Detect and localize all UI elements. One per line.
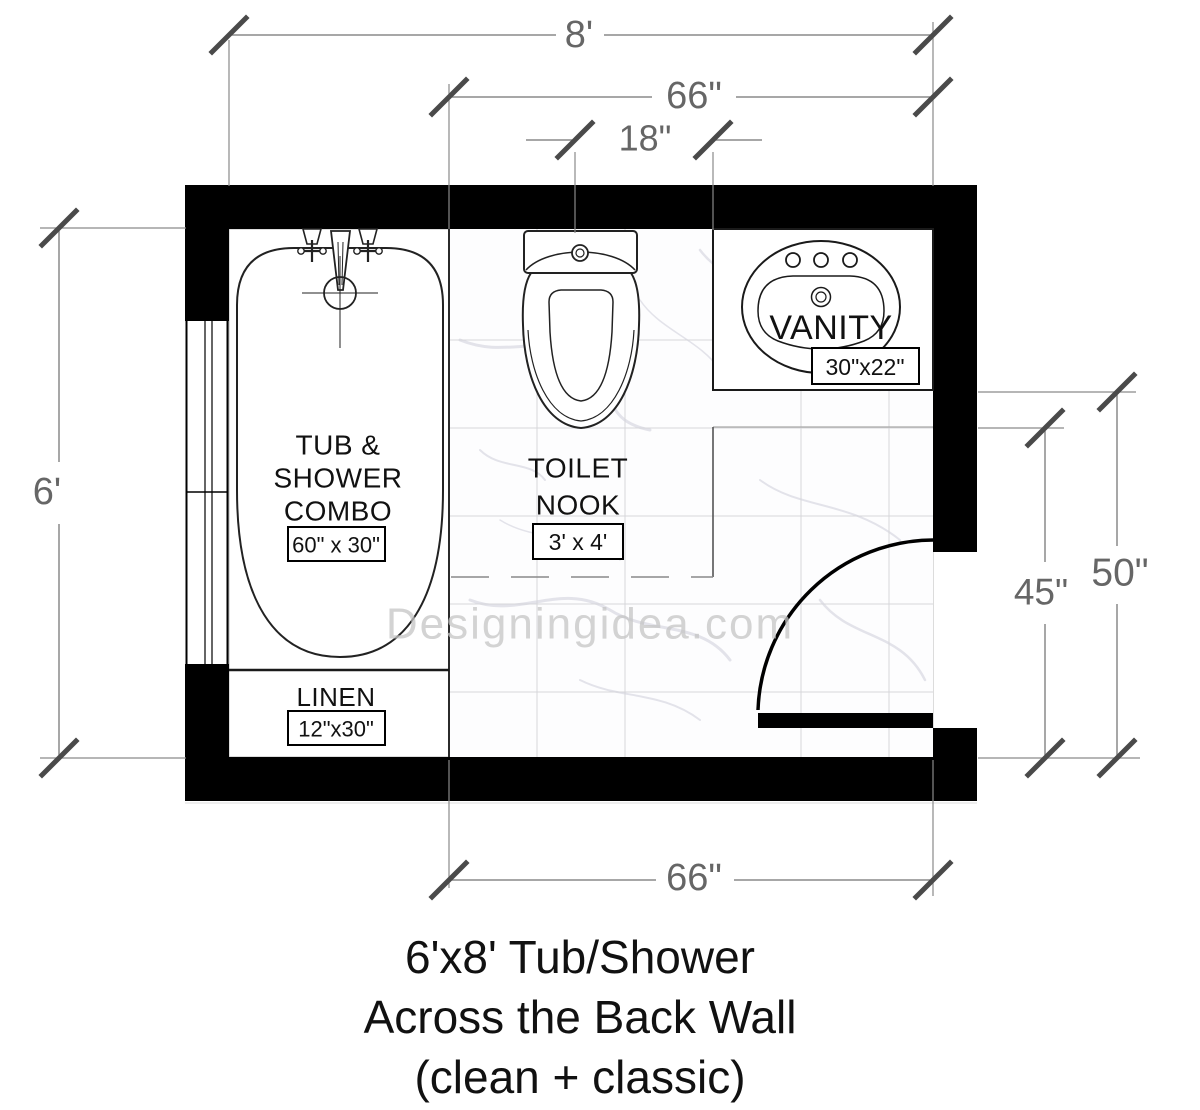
title-line2: Across the Back Wall: [364, 991, 797, 1043]
watermark-text: Designingidea.com: [386, 600, 794, 649]
wall-left-upper: [185, 229, 229, 321]
faucet-hole-center: [814, 253, 828, 267]
vanity-label: VANITY: [769, 309, 892, 347]
toilet-flush-button: [572, 245, 588, 261]
tub-size-text: 60" x 30": [292, 533, 380, 558]
toilet: [523, 231, 639, 428]
dim-toilet-centerline: 18": [619, 118, 672, 159]
dim-inner-width-top: 66": [666, 75, 722, 117]
dim-inner-width-bottom: 66": [666, 857, 722, 899]
vanity-size-text: 30"x22": [826, 354, 905, 380]
tub-label-line2: SHOWER: [274, 463, 403, 494]
nook-size-text: 3' x 4': [549, 529, 608, 555]
sink-drain: [812, 288, 831, 307]
dim-overall-width: 8': [565, 14, 593, 56]
plan-title: 6'x8' Tub/Shower Across the Back Wall (c…: [364, 931, 797, 1103]
dim-right-clearance-outer: 50": [1091, 552, 1148, 595]
title-line1: 6'x8' Tub/Shower: [405, 931, 755, 983]
linen-label: LINEN: [296, 682, 375, 712]
wall-bottom: [185, 757, 977, 801]
faucet-hole-right: [843, 253, 857, 267]
nook-label-line2: NOOK: [536, 490, 620, 521]
dim-right-clearance-inner: 45": [1014, 572, 1068, 613]
faucet-hole-left: [786, 253, 800, 267]
door-leaf: [758, 713, 933, 728]
dim-overall-height: 6': [33, 471, 61, 513]
nook-label-line1: TOILET: [528, 453, 629, 484]
wall-top: [185, 185, 977, 229]
linen-size-text: 12"x30": [298, 717, 374, 742]
floor-plan: TUB & SHOWER COMBO 60" x 30" LINEN 12"x3…: [0, 0, 1200, 1110]
wall-right-upper: [933, 229, 977, 552]
tub-label-line1: TUB &: [296, 430, 381, 461]
title-line3: (clean + classic): [414, 1051, 745, 1103]
tub-label-line3: COMBO: [284, 496, 392, 527]
window: [186, 320, 228, 665]
